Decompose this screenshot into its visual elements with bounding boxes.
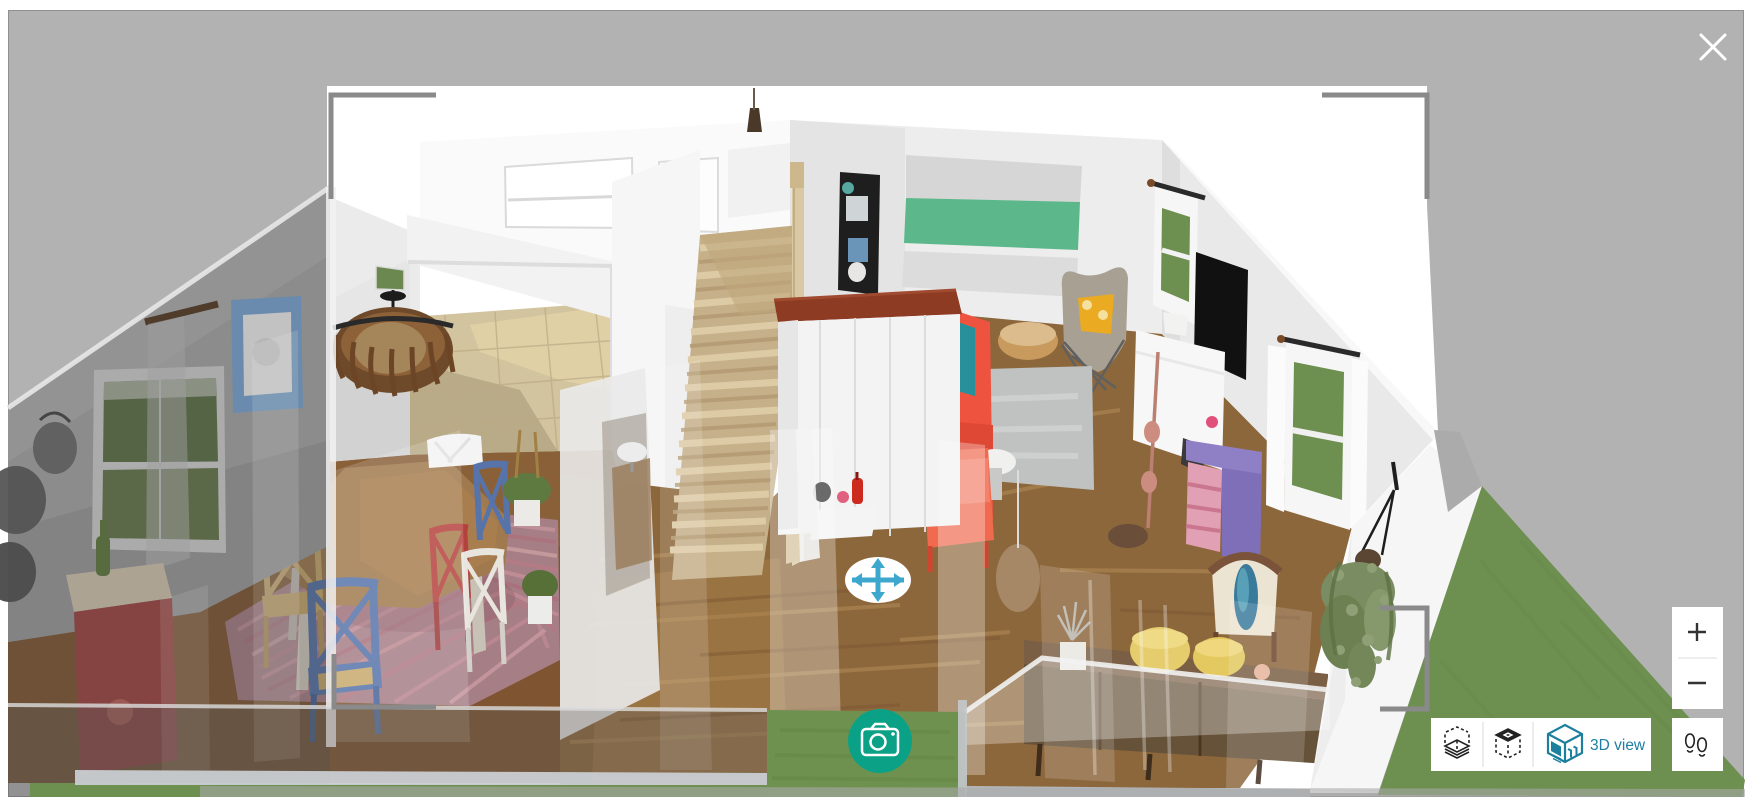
svg-text:3D view: 3D view [1590, 737, 1646, 754]
